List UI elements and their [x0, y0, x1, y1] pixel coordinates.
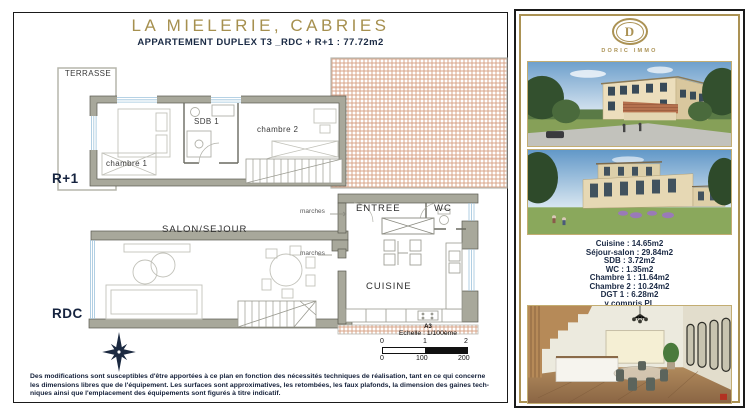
label-terrasse: TERRASSE: [60, 69, 116, 78]
exterior-photo-1: [527, 61, 732, 147]
car: [546, 131, 564, 138]
label-marches-1: marches: [300, 208, 325, 215]
exterior-photo-2: [527, 149, 732, 235]
scale-tick: 2: [464, 338, 468, 345]
scale-tick: 0: [380, 355, 384, 362]
label-cuisine: CUISINE: [366, 281, 412, 292]
entree-closet: [382, 218, 434, 234]
brand-logo-icon: D: [612, 18, 648, 45]
r1-apartment: [89, 95, 346, 186]
disclaimer-line: Des modifications sont susceptibles d'êt…: [30, 373, 496, 382]
label-salon: SALON/SEJOUR: [162, 224, 247, 235]
scale-ticks-meters: 0 1 2: [372, 338, 484, 347]
exterior-render-1: [528, 62, 731, 146]
plant: [663, 343, 679, 363]
interior-render: [528, 306, 731, 403]
scale-tick: 0: [380, 338, 384, 345]
label-chambre1: chambre 1: [106, 159, 147, 168]
exterior-render-2: [528, 150, 731, 234]
disclaimer-line: les dimensions libres que de l'équipemen…: [30, 382, 496, 391]
watermark-logo: [720, 394, 727, 400]
plan-sheet: LA MIELERIE, CABRIES APPARTEMENT DUPLEX …: [0, 0, 750, 420]
subtitle-area: 77.72m2: [343, 37, 383, 48]
disclaimer-text: Des modifications sont susceptibles d'êt…: [30, 373, 496, 399]
brand-name: DORIC IMMO: [516, 48, 743, 54]
disclaimer-line: niques ainsi que l'emplacement des équip…: [30, 390, 496, 399]
rdc-stairs: [238, 301, 316, 327]
roof-hatch-area: [331, 58, 507, 188]
scale-tick: 200: [458, 355, 470, 362]
scale-bar-white: [383, 348, 425, 353]
scale-bar: [382, 347, 468, 354]
label-marches-2: marches: [300, 250, 325, 257]
brand-block: D DORIC IMMO: [516, 18, 743, 54]
brand-logo-inner-ring: D: [616, 22, 644, 42]
rdc-salon: [89, 231, 352, 328]
salon-window: [91, 240, 95, 319]
floor-plan-frame: LA MIELERIE, CABRIES APPARTEMENT DUPLEX …: [13, 12, 508, 403]
scale-tick: 1: [423, 338, 427, 345]
scale-label: Echelle : 1/100ème: [372, 330, 484, 337]
label-sdb1: SDB 1: [194, 117, 219, 126]
scale-tick: 100: [416, 355, 428, 362]
label-level-r1: R+1: [52, 171, 79, 186]
label-wc: WC: [434, 203, 452, 214]
lawn: [528, 207, 731, 234]
label-entree: ENTREE: [356, 203, 401, 214]
label-level-rdc: RDC: [52, 306, 83, 321]
scale-ticks-cm: 0 100 200: [372, 355, 484, 364]
agency-sidebar: D DORIC IMMO: [514, 9, 745, 408]
rdc-entree-cuisine: [318, 194, 478, 334]
page-subtitle: APPARTEMENT DUPLEX T3 _RDC + R+1 : 77.72…: [14, 37, 507, 48]
compass-rose-icon: [100, 331, 138, 373]
page-title: LA MIELERIE, CABRIES: [14, 16, 507, 36]
brand-initial: D: [625, 25, 634, 38]
label-chambre2: chambre 2: [257, 125, 298, 134]
scale-bar-black: [425, 348, 467, 353]
sideboard: [556, 357, 618, 382]
surface-measurements: Cuisine : 14.65m2 Séjour-salon : 29.84m2…: [516, 240, 743, 308]
r1-stairs: [246, 159, 342, 183]
subtitle-text: APPARTEMENT DUPLEX T3 _RDC + R+1 :: [137, 37, 343, 48]
scale-block: A3 Echelle : 1/100ème 0 1 2 0 100 200: [372, 324, 484, 364]
entree-table-chairs: [384, 240, 421, 265]
interior-photo: [527, 305, 732, 404]
